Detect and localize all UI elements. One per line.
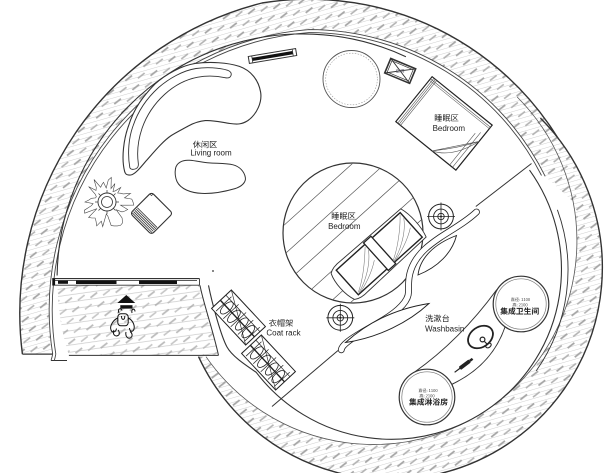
svg-text:Living room: Living room bbox=[190, 148, 232, 157]
svg-text:Bedroom: Bedroom bbox=[433, 124, 466, 133]
svg-text:Coat rack: Coat rack bbox=[266, 328, 301, 337]
svg-text:Washbasin: Washbasin bbox=[425, 325, 464, 334]
svg-text:Bedroom: Bedroom bbox=[328, 222, 361, 231]
